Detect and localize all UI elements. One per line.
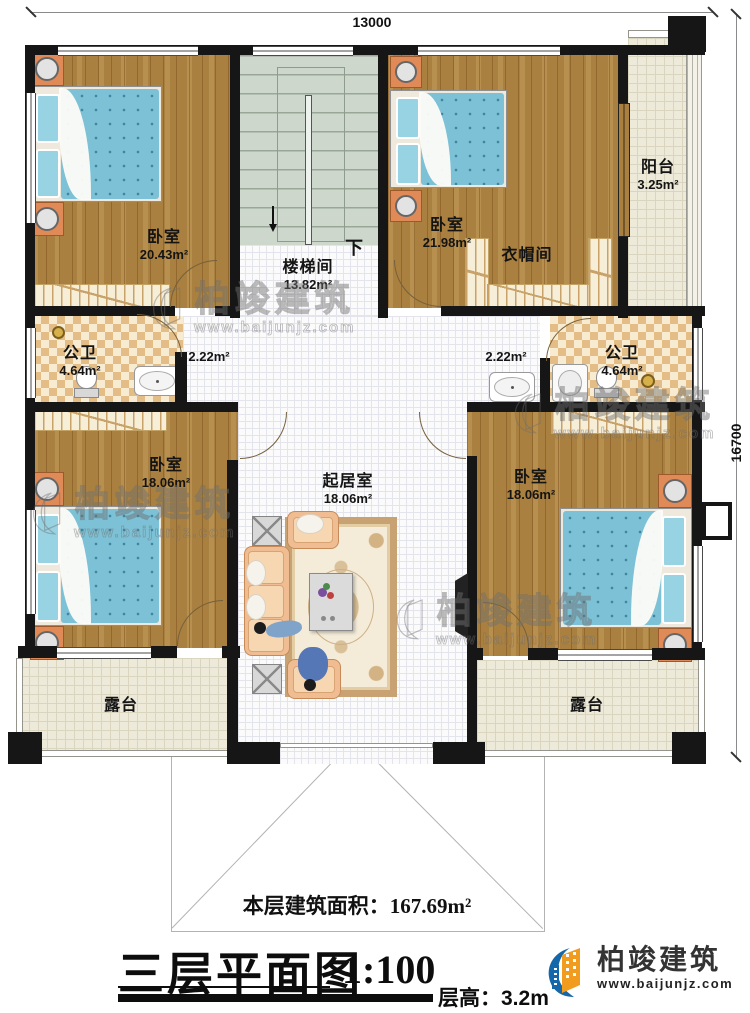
wall	[227, 460, 238, 648]
wall	[25, 402, 238, 412]
label-terrace-left: 露台	[104, 696, 138, 715]
coffee-table	[309, 573, 353, 631]
window	[26, 93, 36, 223]
label-hall-right: 2.22m²	[485, 349, 526, 365]
wall	[467, 648, 483, 660]
person-head	[304, 679, 316, 691]
plan-scale: 1:100	[342, 946, 435, 993]
bed-bedroom-bl	[30, 506, 162, 626]
label-bath-left: 公卫 4.64m²	[59, 344, 100, 379]
toilet-brush	[641, 374, 655, 388]
window	[57, 647, 151, 659]
washing-machine	[552, 364, 588, 402]
bed-bedroom-tl	[30, 86, 162, 202]
brand-logo: 柏竣建筑 www.baijunjz.com	[542, 944, 733, 1000]
label-bedroom-bl: 卧室 18.06m²	[142, 456, 190, 491]
window	[26, 510, 36, 614]
window	[58, 46, 198, 56]
table-dot	[330, 616, 335, 621]
terrace-parapet	[472, 750, 704, 757]
label-cloakroom: 衣帽间	[501, 246, 552, 265]
window	[558, 649, 652, 661]
stair-direction-arrow-head	[269, 224, 277, 232]
balcony-railing	[686, 36, 702, 312]
label-balcony: 阳台 3.25m²	[637, 158, 678, 193]
sink	[134, 366, 180, 396]
brand-name: 柏竣建筑	[597, 944, 733, 976]
person-sitting	[298, 647, 328, 681]
terrace-parapet	[16, 750, 236, 757]
table-dot	[321, 616, 326, 621]
title-underline-bar	[118, 994, 433, 1002]
wall	[222, 646, 240, 658]
side-table	[252, 516, 282, 546]
flue	[702, 502, 732, 540]
nightstand	[30, 472, 64, 506]
wall-pier	[8, 732, 42, 764]
pillow	[36, 94, 60, 144]
ceiling-lamp	[52, 326, 65, 339]
side-table	[252, 664, 282, 694]
throw-pillow	[246, 594, 266, 620]
tv	[455, 573, 468, 639]
bed-bedroom-br	[560, 508, 692, 628]
brand-logo-icon	[542, 944, 590, 1000]
wall	[540, 358, 550, 406]
label-bedroom-br: 卧室 18.06m²	[507, 468, 555, 503]
label-terrace-right: 露台	[570, 696, 604, 715]
dimension-height: 16700	[728, 424, 744, 463]
pillow	[36, 149, 60, 199]
window	[418, 46, 560, 56]
balcony-sliding-door	[618, 103, 630, 237]
window	[693, 546, 703, 642]
label-stairwell: 楼梯间 13.82m²	[282, 258, 333, 293]
stair-rail	[305, 95, 312, 245]
nightstand	[30, 52, 64, 86]
flower	[327, 592, 334, 599]
brand-website: www.baijunjz.com	[597, 976, 733, 991]
wall	[175, 352, 187, 406]
wall	[230, 55, 240, 318]
wall	[652, 648, 705, 660]
stair-down-label: 下	[345, 234, 363, 260]
wall	[467, 402, 705, 412]
floor-area-note: 本层建筑面积：167.69m²	[243, 890, 472, 920]
flower-leaf	[323, 583, 330, 590]
window	[26, 328, 36, 398]
pillow	[396, 97, 420, 139]
sink	[489, 372, 535, 402]
throw-pillow	[246, 560, 266, 586]
wall	[25, 306, 175, 316]
label-bath-right: 公卫 4.64m²	[601, 344, 642, 379]
dimension-width: 13000	[353, 14, 392, 30]
porch-sliding-door	[280, 743, 433, 748]
wall-pier	[672, 732, 706, 764]
wall-pier	[228, 742, 280, 764]
nightstand	[390, 190, 422, 222]
wall	[441, 306, 705, 316]
wall	[528, 648, 558, 660]
floor-height-note: 层高：3.2m	[438, 982, 549, 1012]
wall	[18, 646, 57, 658]
title-underline	[118, 986, 330, 988]
wall	[151, 646, 177, 658]
bed-bedroom-tr	[390, 90, 507, 188]
label-living: 起居室 18.06m²	[322, 472, 373, 507]
wall	[215, 306, 240, 316]
label-bedroom-tl: 卧室 20.43m²	[140, 228, 188, 263]
label-bedroom-tr: 卧室 21.98m²	[423, 216, 471, 251]
pillow	[396, 143, 420, 185]
wall-pier	[668, 16, 706, 52]
stair-direction-arrow	[272, 206, 274, 224]
pillow	[36, 571, 60, 622]
label-hall-left: 2.22m²	[188, 349, 229, 365]
wardrobe	[588, 238, 612, 309]
wall-pier	[433, 742, 485, 764]
wall	[378, 45, 388, 318]
pillow	[36, 514, 60, 565]
dimension-line-right	[736, 14, 737, 758]
window	[253, 46, 353, 56]
wall	[467, 456, 477, 656]
nightstand	[658, 474, 692, 508]
wardrobe	[551, 410, 668, 434]
dimension-line-top	[30, 12, 714, 13]
person-head	[254, 622, 266, 634]
floor-plan-sheet: 13000 16700	[0, 0, 750, 1013]
pillow	[662, 573, 686, 624]
pillow	[662, 516, 686, 567]
nightstand	[390, 56, 422, 88]
window	[693, 328, 703, 400]
throw-pillow	[296, 514, 324, 534]
